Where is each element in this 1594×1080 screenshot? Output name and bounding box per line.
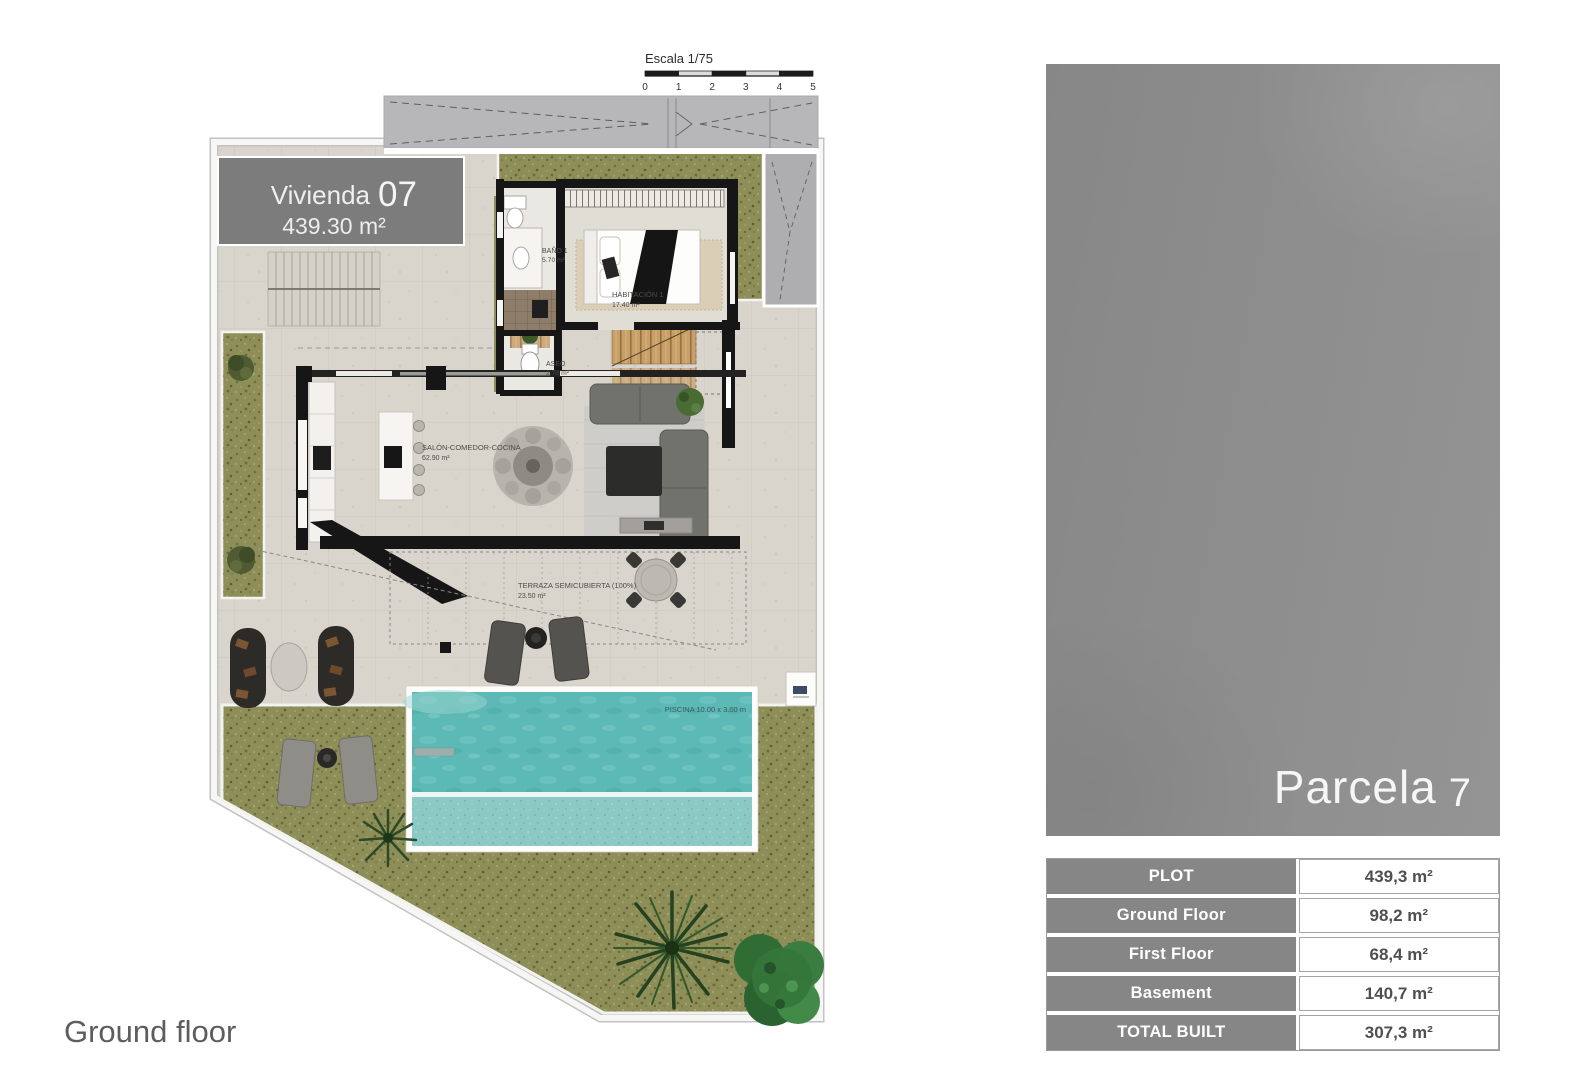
row-label-basement: Basement bbox=[1047, 976, 1296, 1011]
parcel-number: 7 bbox=[1449, 771, 1472, 815]
dining-set bbox=[493, 426, 573, 506]
svg-text:1: 1 bbox=[676, 82, 682, 93]
row-value-plot: 439,3 m² bbox=[1299, 859, 1499, 894]
table-row: First Floor 68,4 m² bbox=[1047, 937, 1499, 972]
floor-name-label: Ground floor bbox=[64, 1014, 236, 1050]
scale-bar: Escala 1/75 0 1 2 3 4 5 bbox=[642, 51, 816, 93]
row-value-total-built: 307,3 m² bbox=[1299, 1015, 1499, 1050]
row-value-ground-floor: 98,2 m² bbox=[1299, 898, 1499, 933]
floor-plan: Escala 1/75 0 1 2 3 4 5 bbox=[0, 0, 900, 1080]
svg-text:2: 2 bbox=[709, 82, 715, 93]
unit-label-box: Vivienda 07 439.30 m² bbox=[218, 157, 464, 245]
unit-number: 07 bbox=[378, 175, 417, 214]
row-label-total-built: TOTAL BUILT bbox=[1047, 1015, 1296, 1050]
svg-text:5: 5 bbox=[810, 82, 816, 93]
room-label-terraza: TERRAZA SEMICUBIERTA (100%) bbox=[518, 581, 637, 590]
sofa-set bbox=[584, 384, 708, 548]
room-label-salon: SALÓN-COMEDOR-COCINA bbox=[422, 443, 521, 452]
table-row: TOTAL BUILT 307,3 m² bbox=[1047, 1015, 1499, 1050]
pool: PISCINA 10.00 x 3.00 m bbox=[403, 686, 758, 852]
parcel-panel: Parcela7 bbox=[1046, 64, 1500, 836]
room-area-salon: 62.90 m² bbox=[422, 455, 450, 462]
room-label-bano: BAÑO 1 bbox=[542, 246, 568, 255]
areas-table: PLOT 439,3 m² Ground Floor 98,2 m² First… bbox=[1046, 858, 1500, 1051]
table-row: Basement 140,7 m² bbox=[1047, 976, 1499, 1011]
pool-utility-box bbox=[786, 672, 816, 706]
row-label-ground-floor: Ground Floor bbox=[1047, 898, 1296, 933]
side-path bbox=[764, 150, 818, 306]
pool-label: PISCINA 10.00 x 3.00 m bbox=[665, 705, 746, 714]
parcel-label: Parcela7 bbox=[1274, 760, 1472, 814]
table-row: Ground Floor 98,2 m² bbox=[1047, 898, 1499, 933]
svg-text:3: 3 bbox=[743, 82, 749, 93]
room-label-habitacion: HABITACIÓN 1 bbox=[612, 290, 664, 299]
scale-ticks: 0 1 2 3 4 5 bbox=[642, 82, 816, 93]
room-label-aseo: ASEO bbox=[546, 361, 566, 368]
scale-label: Escala 1/75 bbox=[645, 51, 713, 66]
room-area-terraza: 23.50 m² bbox=[518, 593, 546, 600]
row-label-first-floor: First Floor bbox=[1047, 937, 1296, 972]
unit-area: 439.30 m² bbox=[282, 213, 386, 239]
table-row: PLOT 439,3 m² bbox=[1047, 859, 1499, 894]
svg-text:0: 0 bbox=[642, 82, 648, 93]
room-area-habitacion: 17.40 m² bbox=[612, 302, 640, 309]
room-area-aseo: 2.70 m² bbox=[546, 370, 570, 377]
row-value-basement: 140,7 m² bbox=[1299, 976, 1499, 1011]
page: Escala 1/75 0 1 2 3 4 5 bbox=[0, 0, 1594, 1080]
driveway bbox=[384, 96, 818, 154]
svg-text:4: 4 bbox=[777, 82, 783, 93]
row-value-first-floor: 68,4 m² bbox=[1299, 937, 1499, 972]
panel-sheen bbox=[1230, 64, 1500, 274]
row-label-plot: PLOT bbox=[1047, 859, 1296, 894]
parcel-name: Parcela bbox=[1274, 761, 1437, 813]
unit-name: Vivienda bbox=[271, 180, 371, 210]
room-area-bano: 5.70 m² bbox=[542, 257, 566, 264]
